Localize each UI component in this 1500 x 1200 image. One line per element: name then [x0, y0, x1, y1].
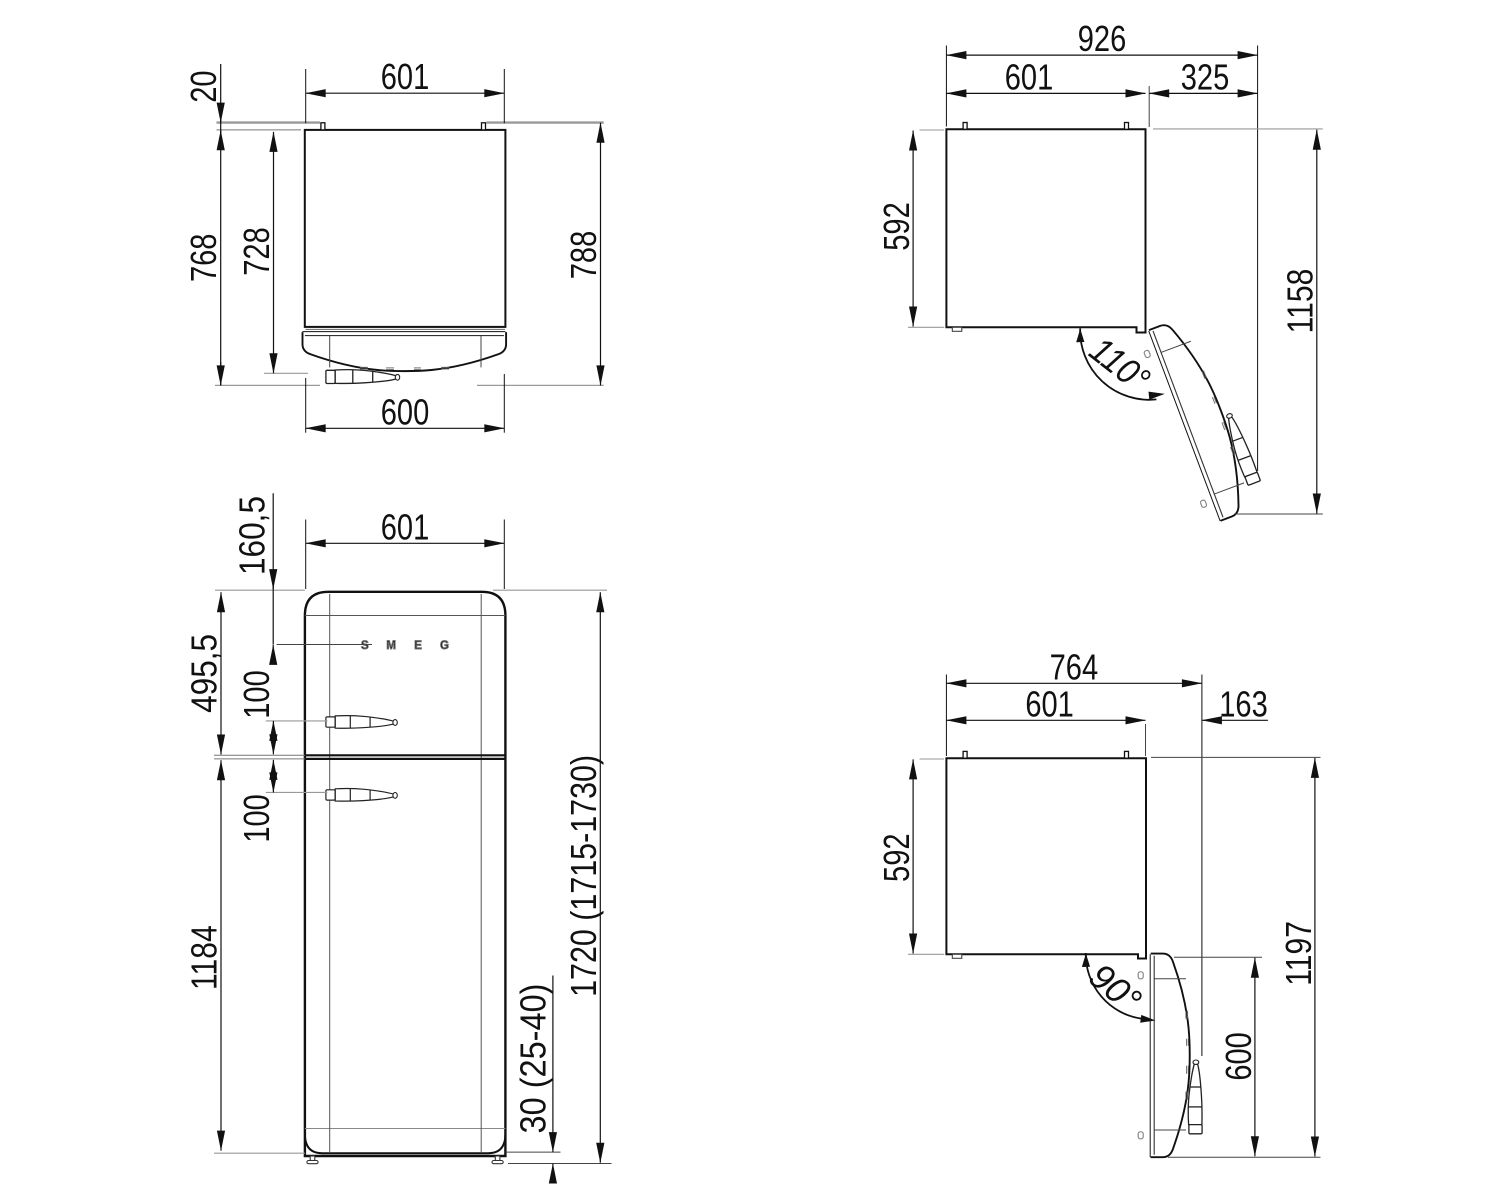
svg-text:1197: 1197: [1278, 921, 1319, 986]
svg-text:1720 (1715-1730): 1720 (1715-1730): [563, 755, 604, 997]
svg-text:90°: 90°: [1082, 955, 1150, 1021]
svg-text:100: 100: [236, 794, 277, 843]
svg-text:764: 764: [1050, 646, 1099, 687]
svg-text:788: 788: [563, 231, 604, 280]
svg-text:600: 600: [381, 391, 430, 432]
svg-text:G: G: [440, 640, 449, 652]
svg-text:163: 163: [1219, 683, 1268, 724]
svg-text:M: M: [386, 640, 396, 652]
svg-text:1184: 1184: [184, 925, 225, 990]
svg-text:592: 592: [876, 202, 917, 251]
svg-text:495,5: 495,5: [184, 634, 225, 713]
svg-text:30 (25-40): 30 (25-40): [513, 984, 554, 1134]
svg-text:160,5: 160,5: [232, 496, 273, 575]
svg-text:E: E: [414, 640, 422, 652]
svg-text:926: 926: [1078, 18, 1127, 59]
svg-text:1158: 1158: [1280, 269, 1321, 334]
svg-text:601: 601: [1025, 683, 1074, 724]
svg-text:S: S: [361, 640, 369, 652]
svg-text:728: 728: [236, 227, 277, 276]
svg-text:601: 601: [381, 56, 430, 97]
svg-text:592: 592: [876, 833, 917, 882]
svg-text:325: 325: [1181, 56, 1230, 97]
svg-text:601: 601: [381, 506, 430, 547]
svg-text:768: 768: [183, 234, 224, 283]
svg-text:100: 100: [236, 670, 277, 719]
svg-text:20: 20: [183, 70, 224, 102]
svg-text:600: 600: [1218, 1032, 1259, 1081]
svg-text:601: 601: [1005, 56, 1054, 97]
svg-text:110°: 110°: [1082, 329, 1158, 401]
